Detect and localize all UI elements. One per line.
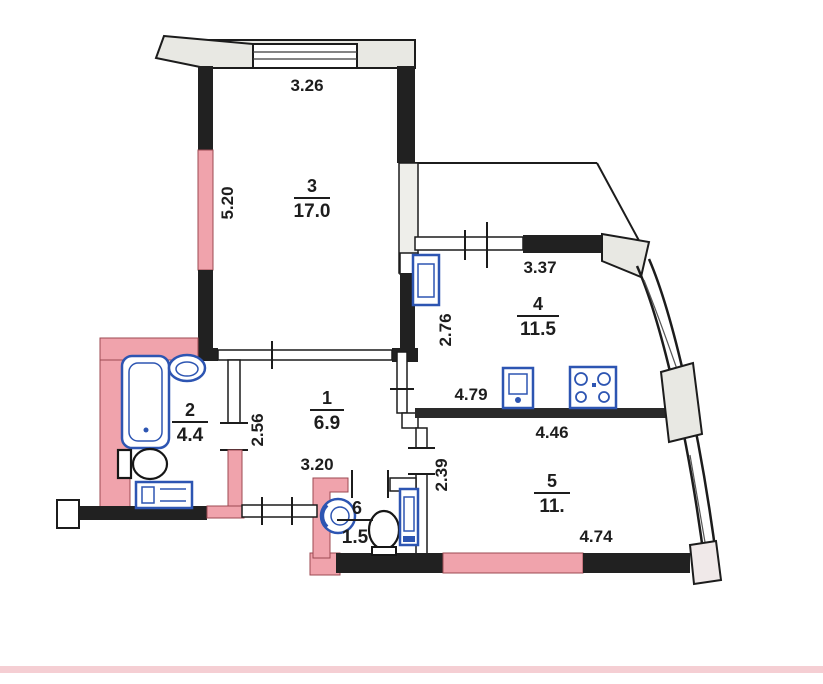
partition-wall xyxy=(397,352,407,413)
room4-number: 4 xyxy=(533,294,543,314)
room1-area: 6.9 xyxy=(314,413,340,434)
dim-room5-left: 2.39 xyxy=(432,458,451,491)
stove-icon xyxy=(570,367,616,408)
room2-area: 4.4 xyxy=(177,425,204,446)
kitchen-sink-tap xyxy=(515,397,521,403)
wall-segment xyxy=(198,270,213,352)
room1-number: 1 xyxy=(322,388,332,408)
wall-segment xyxy=(198,66,213,150)
room4-area: 11.5 xyxy=(520,319,556,340)
dim-room5-bottom: 4.74 xyxy=(579,527,613,546)
wall-stub xyxy=(57,500,79,528)
wall-segment xyxy=(228,450,242,510)
dim-room5-top: 4.46 xyxy=(535,423,568,442)
floor-plan-page: 3 17.0 4 11.5 1 6.9 2 4.4 5 11. 6 1.5 3.… xyxy=(0,0,823,684)
scan-stripe xyxy=(0,666,823,673)
partition-wall xyxy=(415,237,523,250)
bathtub-drain xyxy=(144,428,149,433)
room6-number: 6 xyxy=(352,498,362,518)
wall-segment xyxy=(397,66,415,163)
wall-segment xyxy=(198,150,213,270)
room2-number: 2 xyxy=(185,400,195,420)
pillar xyxy=(690,541,721,584)
dim-room1-bottom: 3.20 xyxy=(300,455,333,474)
wc-toilet-base xyxy=(372,547,396,555)
water-heater-valve xyxy=(403,536,415,542)
dim-room4-top: 3.37 xyxy=(523,258,556,277)
washing-machine-icon xyxy=(136,482,192,508)
dim-room1-left: 2.56 xyxy=(248,413,267,446)
wall-segment xyxy=(583,553,690,573)
wall-segment xyxy=(207,506,244,518)
toilet-icon xyxy=(133,449,167,479)
window xyxy=(253,44,357,68)
room3-area: 17.0 xyxy=(294,201,331,222)
wc-toilet-icon xyxy=(369,511,399,549)
floor-plan: 3 17.0 4 11.5 1 6.9 2 4.4 5 11. 6 1.5 3.… xyxy=(0,0,823,684)
dim-room4-counter: 4.79 xyxy=(454,385,487,404)
washbasin-icon xyxy=(169,355,205,381)
dim-room3-left: 5.20 xyxy=(218,186,237,219)
entrance-wall xyxy=(242,505,317,517)
partition-wall xyxy=(416,428,427,448)
wall-segment xyxy=(523,235,605,253)
partition-wall xyxy=(218,350,392,360)
room5-area: 11. xyxy=(539,496,564,517)
wall-segment xyxy=(415,408,673,418)
wall-segment xyxy=(443,553,583,573)
toilet-tank xyxy=(118,450,131,478)
partition-wall xyxy=(228,360,240,423)
room5-number: 5 xyxy=(547,471,557,491)
stove-center xyxy=(592,383,596,387)
dim-room4-left: 2.76 xyxy=(436,313,455,346)
dim-room3-top: 3.26 xyxy=(290,76,323,95)
room3-number: 3 xyxy=(307,176,317,196)
room6-area: 1.5 xyxy=(342,527,369,548)
